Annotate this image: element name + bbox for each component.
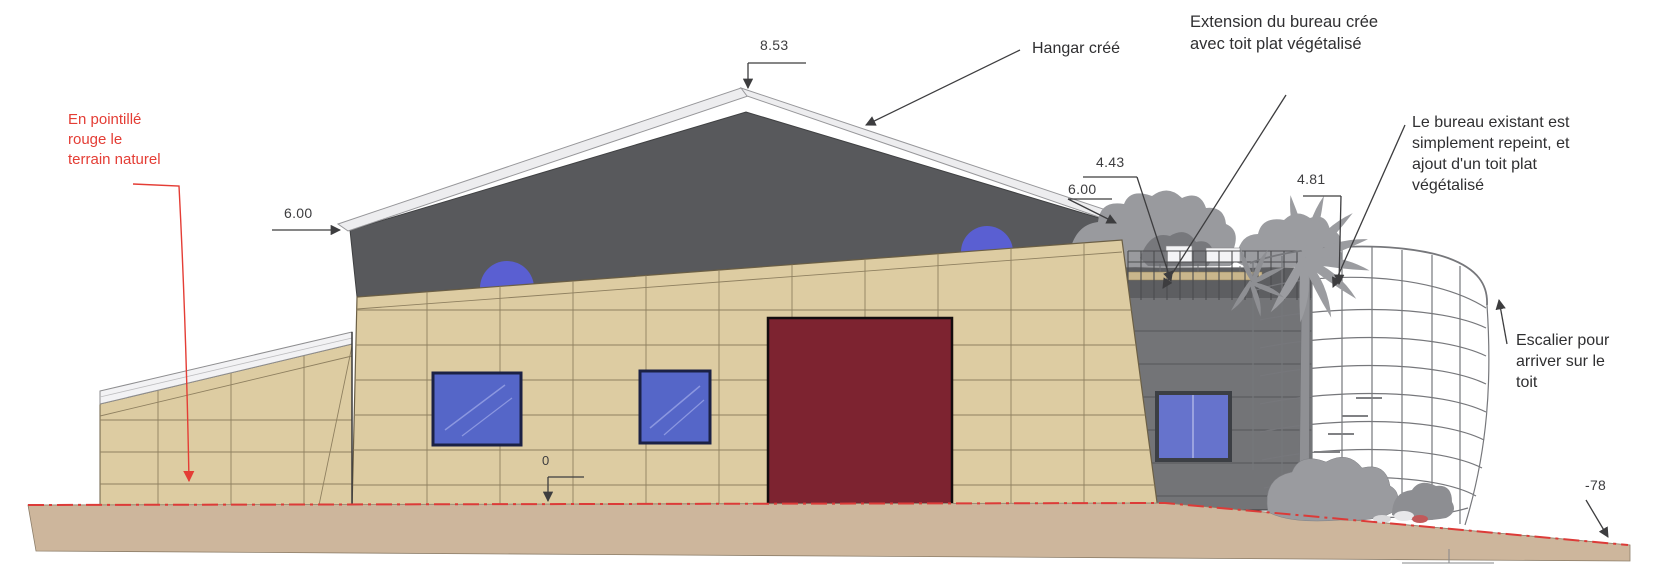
annotation-terrain-note: En pointillé rouge le terrain naturel bbox=[68, 110, 163, 169]
hangar-door bbox=[768, 318, 952, 506]
elevation-canvas: En pointillé rouge le terrain naturel 8.… bbox=[0, 0, 1666, 569]
annotation-extension: Extension du bureau crée avec toit plat … bbox=[1190, 12, 1380, 56]
base-bushes bbox=[1267, 457, 1454, 523]
leader-terrain-78 bbox=[1586, 500, 1608, 537]
leader-hangar bbox=[866, 50, 1020, 125]
elevation-drawing bbox=[0, 0, 1666, 569]
dim-eave-left: 6.00 bbox=[284, 204, 312, 222]
dim-office-height: 4.81 bbox=[1297, 170, 1325, 188]
annotation-bureau: Le bureau existant est simplement repein… bbox=[1412, 112, 1607, 196]
dim-ridge-height: 8.53 bbox=[760, 36, 788, 54]
leader-bureau-note bbox=[1333, 125, 1405, 287]
dim-eave-right: 6.00 bbox=[1068, 180, 1096, 198]
extension-window bbox=[1157, 393, 1230, 460]
dim-extension-height: 4.43 bbox=[1096, 153, 1124, 171]
dim-ground-level: 0 bbox=[542, 452, 550, 469]
annotation-hangar: Hangar créé bbox=[1032, 38, 1120, 59]
left-wing bbox=[100, 332, 352, 510]
dim-terrain-low: -78 bbox=[1585, 476, 1606, 494]
leader-ridge-853 bbox=[748, 63, 806, 88]
leader-escalier-arrow bbox=[1499, 300, 1507, 344]
hangar-window-right bbox=[640, 371, 710, 443]
annotation-escalier: Escalier pour arriver sur le toit bbox=[1516, 330, 1621, 393]
hangar-window-left bbox=[433, 373, 521, 445]
